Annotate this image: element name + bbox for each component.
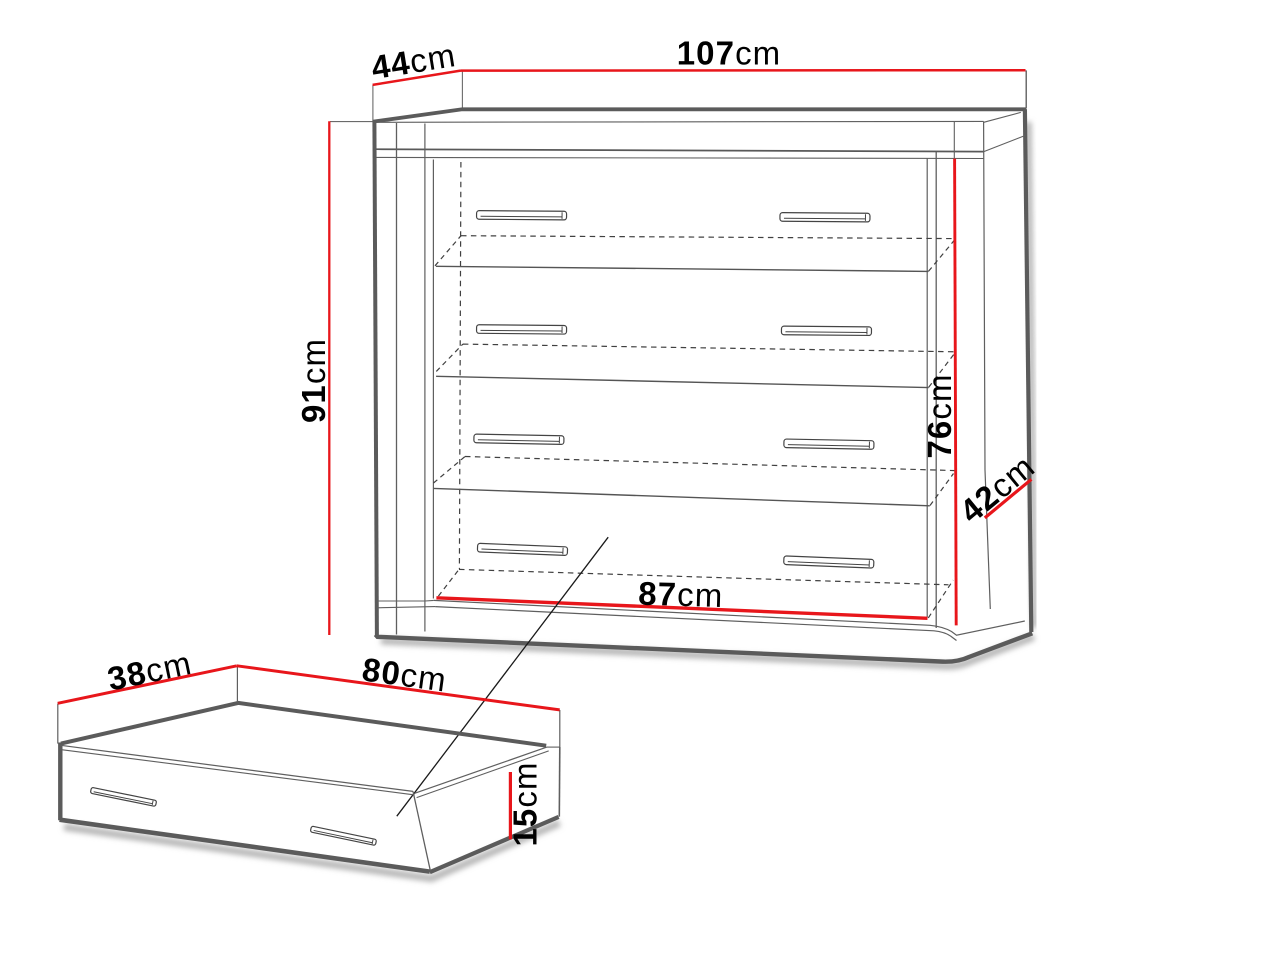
svg-text:38cm: 38cm bbox=[104, 644, 195, 698]
svg-text:76cm: 76cm bbox=[921, 373, 958, 458]
svg-text:15cm: 15cm bbox=[507, 761, 544, 846]
svg-text:80cm: 80cm bbox=[360, 651, 449, 699]
svg-text:87cm: 87cm bbox=[638, 575, 724, 614]
svg-text:107cm: 107cm bbox=[677, 34, 782, 71]
svg-text:91cm: 91cm bbox=[295, 338, 332, 423]
